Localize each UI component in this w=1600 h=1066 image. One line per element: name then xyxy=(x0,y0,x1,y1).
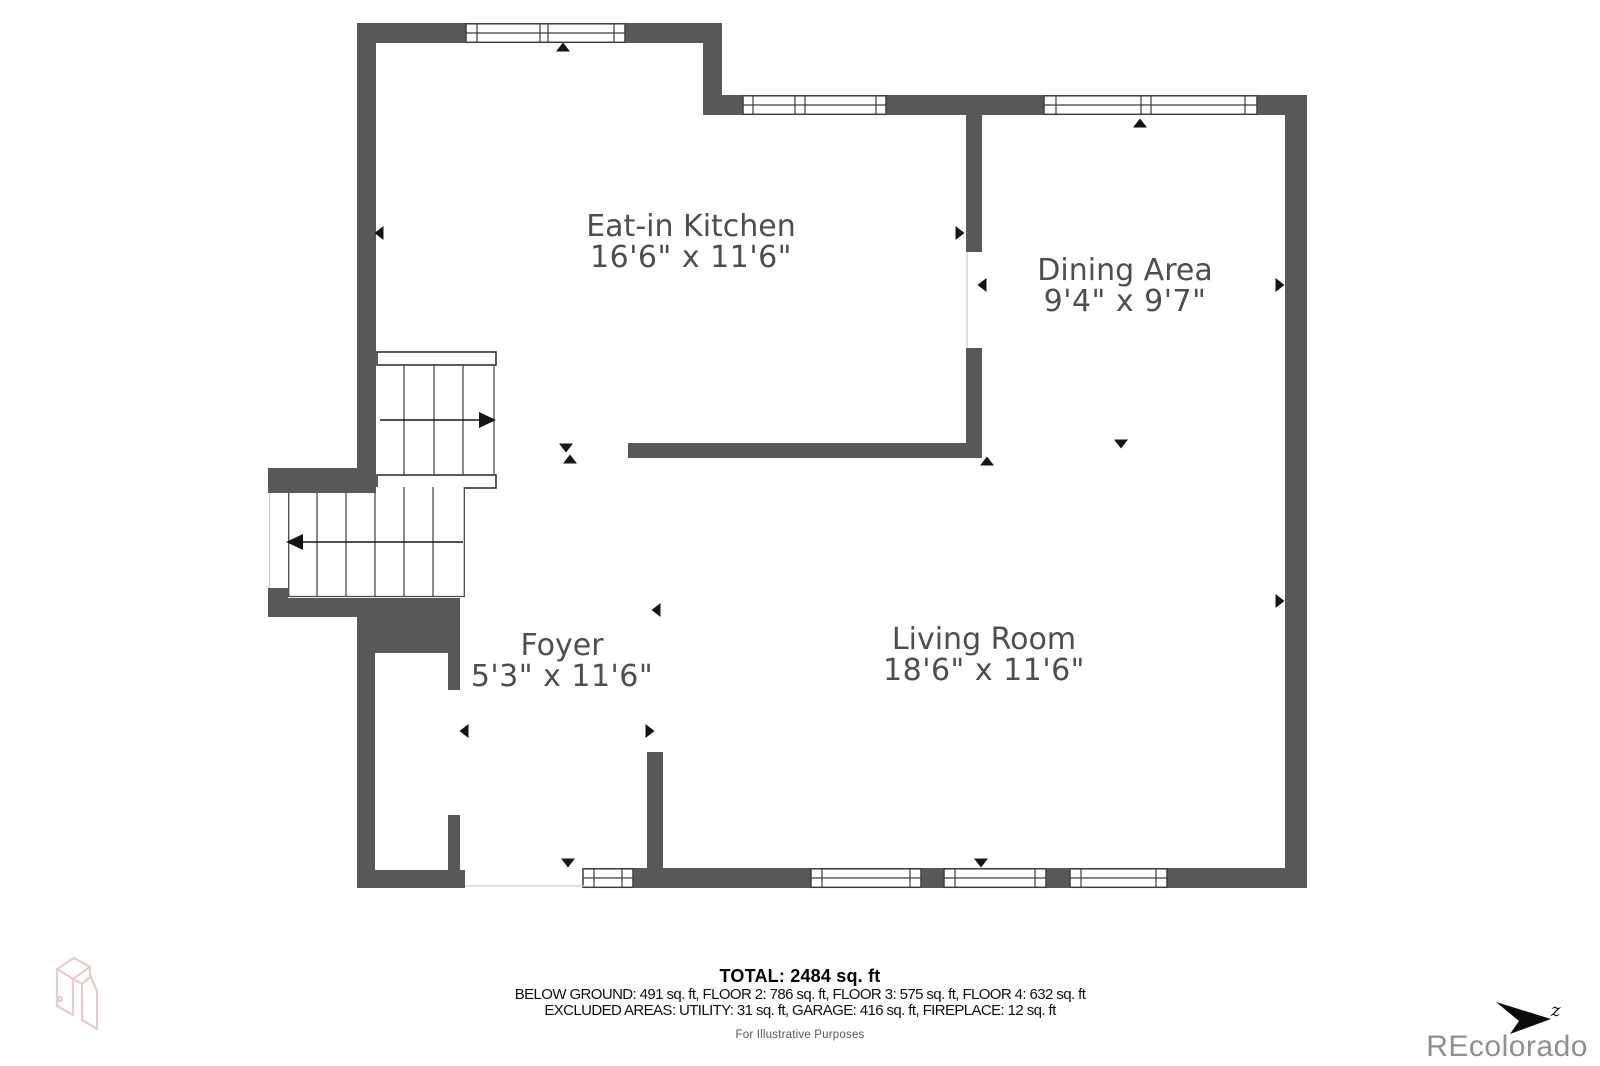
stair-landing-mid xyxy=(377,475,496,488)
room-label-living: Living Room 18'6" x 11'6" xyxy=(883,624,1085,686)
disclaimer-text: For Illustrative Purposes xyxy=(0,1029,1600,1041)
room-name: Eat-in Kitchen xyxy=(586,211,796,242)
wall-stair-lower-step xyxy=(268,588,288,617)
arrow-up-foyer-icon xyxy=(563,455,577,464)
floor-areas-text: BELOW GROUND: 491 sq. ft, FLOOR 2: 786 s… xyxy=(0,986,1600,1003)
arrow-up-living-icon xyxy=(980,457,994,466)
room-dimensions: 18'6" x 11'6" xyxy=(883,655,1085,686)
arrow-down-kitchen-icon xyxy=(559,444,573,453)
floor-plan-svg: z xyxy=(0,0,1600,1066)
arrow-right-dining-icon xyxy=(1276,278,1285,292)
wall-foyer-living-stub xyxy=(647,752,663,888)
wall-left xyxy=(357,23,376,469)
room-label-foyer: Foyer 5'3" x 11'6" xyxy=(471,630,653,692)
floor-plan-page: z Eat-in Kitchen 16'6" x 11'6" Dining Ar… xyxy=(0,0,1600,1066)
room-label-kitchen: Eat-in Kitchen 16'6" x 11'6" xyxy=(586,211,796,273)
window-bottom-1 xyxy=(811,869,921,888)
recolorado-watermark: REcolorado xyxy=(1426,1030,1588,1064)
window-dining-top-2 xyxy=(1044,96,1257,115)
excluded-areas-text: EXCLUDED AREAS: UTILITY: 31 sq. ft, GARA… xyxy=(0,1002,1600,1019)
arrow-down-foyer-icon xyxy=(561,859,575,868)
wall-alcove-right-upper xyxy=(448,653,460,690)
wall-foyer-left xyxy=(357,617,375,888)
room-dimensions: 5'3" x 11'6" xyxy=(471,661,653,692)
arrow-right-living-icon xyxy=(1276,594,1285,608)
arrow-right-foyer-icon xyxy=(646,724,655,738)
wall-stair-lower xyxy=(288,598,460,617)
wall-alcove-right-lower xyxy=(448,815,460,870)
wall-kitchen-dining-upper xyxy=(966,115,982,252)
room-name: Dining Area xyxy=(1037,255,1212,286)
room-label-dining: Dining Area 9'4" x 9'7" xyxy=(1037,255,1212,317)
wall-kitchen-living xyxy=(628,443,982,458)
wall-stair-upper-left xyxy=(268,468,376,493)
room-dimensions: 16'6" x 11'6" xyxy=(586,242,796,273)
arrow-down-dining-icon xyxy=(1114,440,1128,449)
wall-right xyxy=(1285,95,1307,888)
arrow-left-dining-icon xyxy=(978,278,987,292)
window-bottom-2 xyxy=(944,869,1046,888)
arrow-left-living-icon xyxy=(652,603,661,617)
arrow-up-dining-icon xyxy=(1133,119,1147,128)
arrow-up-kitchen-icon xyxy=(556,43,570,52)
arrow-right-kitchen-icon xyxy=(956,226,965,240)
window-bottom-entry xyxy=(583,869,633,888)
total-area-text: TOTAL: 2484 sq. ft xyxy=(0,966,1600,987)
wall-kitchen-dining-lower xyxy=(966,348,982,458)
arrow-down-living-icon xyxy=(974,859,988,868)
room-dimensions: 9'4" x 9'7" xyxy=(1037,286,1212,317)
stair-landing-top xyxy=(377,352,496,365)
window-kitchen-top xyxy=(466,24,625,43)
room-name: Living Room xyxy=(883,624,1085,655)
arrow-left-foyer-icon xyxy=(460,724,469,738)
wall-alcove-top xyxy=(375,617,460,653)
window-bottom-3 xyxy=(1070,869,1167,888)
room-name: Foyer xyxy=(471,630,653,661)
window-dining-top-1 xyxy=(743,96,886,115)
